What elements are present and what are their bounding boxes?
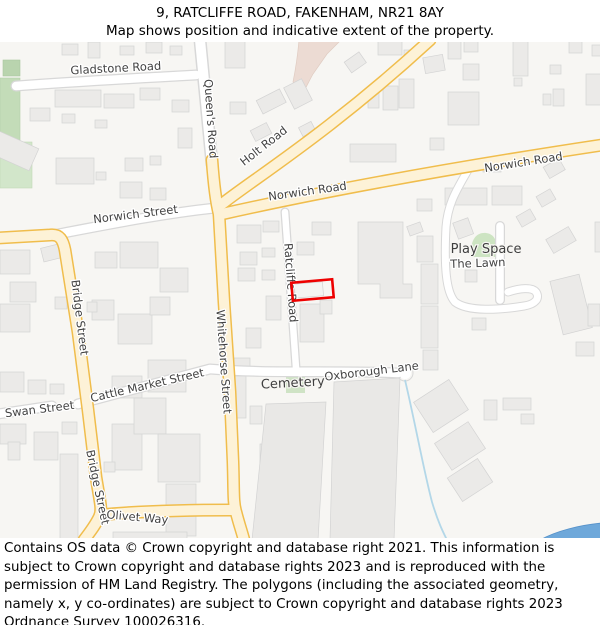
property-map-report: 9, RATCLIFFE ROAD, FAKENHAM, NR21 8AY Ma…: [0, 0, 600, 625]
report-header: 9, RATCLIFFE ROAD, FAKENHAM, NR21 8AY Ma…: [0, 0, 600, 42]
copyright-footer: Contains OS data © Crown copyright and d…: [0, 538, 600, 625]
map-canvas: Gladstone Road Queen's Road Holt Road No…: [0, 42, 600, 540]
label-the-lawn: The Lawn: [449, 255, 506, 271]
page-title: 9, RATCLIFFE ROAD, FAKENHAM, NR21 8AY: [0, 0, 600, 22]
map-container: Gladstone Road Queen's Road Holt Road No…: [0, 42, 600, 540]
page-subtitle: Map shows position and indicative extent…: [0, 22, 600, 40]
